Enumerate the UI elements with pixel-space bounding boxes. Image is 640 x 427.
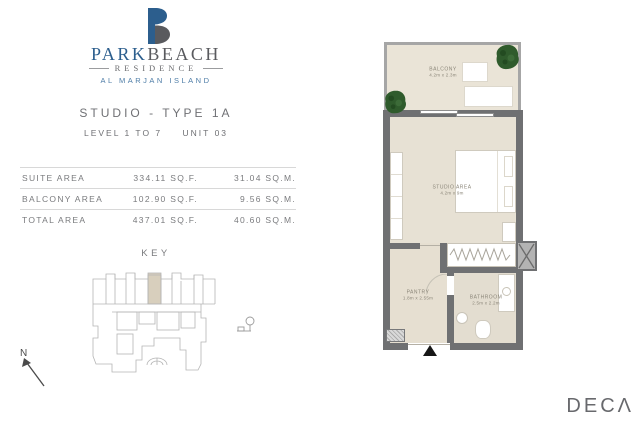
- row-sqm: 40.60 SQ.M.: [216, 215, 296, 225]
- north-arrow-icon: [16, 354, 52, 390]
- unit-number: UNIT 03: [183, 128, 229, 138]
- shaft-x-icon: [518, 243, 535, 269]
- plant-icon: [381, 88, 409, 116]
- counter-divider: [391, 174, 402, 175]
- room-dims: 4.2m x 9m: [412, 191, 492, 196]
- pillow: [504, 156, 513, 177]
- wall-pantry-bath-upper: [447, 266, 454, 276]
- row-label: BALCONY AREA: [22, 194, 108, 204]
- pillow: [504, 186, 513, 207]
- brand-location: AL MARJAN ISLAND: [16, 76, 296, 85]
- table-row-total: TOTAL AREA 437.01 SQ.F. 40.60 SQ.M.: [20, 209, 296, 230]
- row-sqf: 437.01 SQ.F.: [108, 215, 198, 225]
- row-sqf: 102.90 SQ.F.: [108, 194, 198, 204]
- row-sqf: 334.11 SQ.F.: [108, 173, 198, 183]
- plant-icon: [492, 42, 522, 72]
- row-sqm: 31.04 SQ.M.: [216, 173, 296, 183]
- wall-right: [516, 110, 523, 350]
- studio-label: STUDIO AREA 4.2m x 9m: [412, 185, 492, 196]
- keyplan-diagram: [85, 264, 235, 379]
- table-row-balcony: BALCONY AREA 102.90 SQ.F. 9.56 SQ.M.: [20, 188, 296, 209]
- bed-line: [497, 151, 498, 212]
- row-sqm: 9.56 SQ.M.: [216, 194, 296, 204]
- sliding-door: [456, 113, 494, 117]
- brand-park: PARK: [91, 44, 147, 64]
- table-row-suite: SUITE AREA 334.11 SQ.F. 31.04 SQ.M.: [20, 167, 296, 188]
- brand-name: PARKBEACH: [16, 44, 296, 65]
- brand-residence-row: RESIDENCE: [16, 63, 296, 73]
- landmark-icon: [233, 314, 257, 334]
- wall-left: [383, 110, 390, 350]
- b-monogram-icon: [136, 7, 176, 45]
- counter-divider: [391, 196, 402, 197]
- unit-subtitle: LEVEL 1 TO 7 UNIT 03: [16, 128, 296, 138]
- key-title: KEY: [16, 248, 296, 259]
- balcony-label: BALCONY 4.2m x 2.3m: [403, 67, 483, 78]
- room-dims: 4.2m x 2.3m: [403, 73, 483, 78]
- counter-divider: [391, 218, 402, 219]
- room-name: BATHROOM: [446, 295, 526, 301]
- wall-wardrobe-left: [440, 243, 447, 273]
- left-dash: [89, 68, 109, 69]
- dresser: [502, 222, 516, 242]
- row-label: TOTAL AREA: [22, 215, 108, 225]
- toilet: [475, 320, 491, 339]
- room-name: BALCONY: [403, 67, 483, 73]
- washer-unit: [386, 329, 405, 342]
- room-name: STUDIO AREA: [412, 185, 492, 191]
- sliding-door: [420, 110, 458, 114]
- brand-beach: BEACH: [147, 44, 221, 64]
- right-dash: [203, 68, 223, 69]
- balcony-rug: [464, 86, 513, 107]
- bathroom-label: BATHROOM 2.5m x 2.2m: [446, 295, 526, 306]
- unit-title: STUDIO - TYPE 1A: [16, 106, 296, 120]
- unit-level: LEVEL 1 TO 7: [84, 128, 162, 138]
- wall-under-wardrobe: [447, 266, 516, 273]
- wardrobe-hangers-icon: [448, 244, 515, 266]
- entry-arrow-icon: [423, 345, 437, 356]
- shower: [456, 312, 468, 324]
- brand-residence: RESIDENCE: [115, 63, 198, 73]
- row-label: SUITE AREA: [22, 173, 108, 183]
- wall-bottom: [383, 343, 523, 350]
- room-dims: 2.5m x 2.2m: [446, 301, 526, 306]
- area-table: SUITE AREA 334.11 SQ.F. 31.04 SQ.M. BALC…: [20, 167, 296, 230]
- deca-logo: DECΛ: [548, 395, 634, 418]
